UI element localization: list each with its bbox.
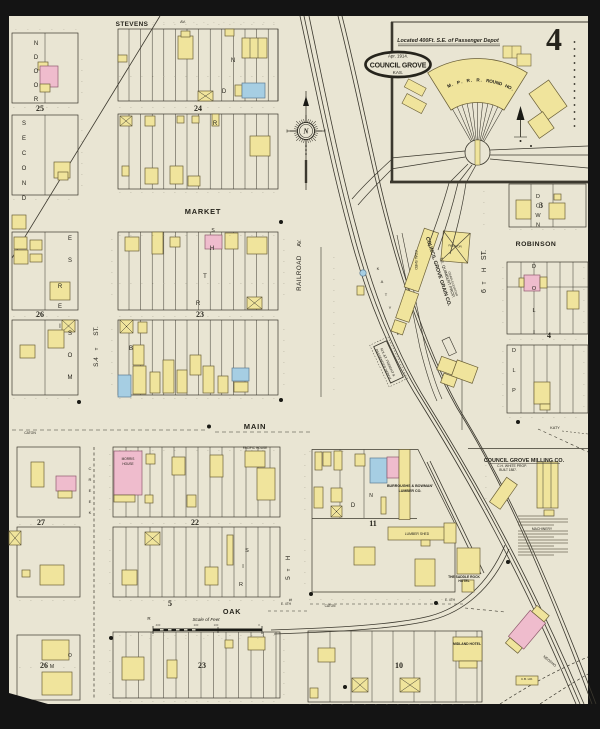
svg-text:H: H: [210, 246, 214, 252]
svg-text:5: 5: [168, 599, 172, 608]
svg-text:4: 4: [547, 331, 551, 340]
svg-text:N: N: [231, 58, 235, 64]
svg-text:R: R: [58, 284, 63, 290]
svg-text:D: D: [351, 503, 356, 509]
svg-text:ROBINSON: ROBINSON: [516, 241, 557, 248]
svg-text:R: R: [239, 582, 243, 588]
svg-text:O: O: [34, 69, 39, 75]
svg-text:R: R: [213, 121, 218, 127]
svg-text:26: 26: [36, 310, 44, 319]
svg-text:O: O: [68, 653, 72, 659]
svg-text:E: E: [58, 304, 62, 310]
svg-text:25: 25: [36, 104, 44, 113]
svg-text:S: S: [68, 331, 72, 337]
svg-text:MIDLAND HOTEL: MIDLAND HOTEL: [453, 642, 481, 646]
svg-text:E: E: [89, 499, 92, 504]
svg-text:C.B. HO.: C.B. HO.: [521, 677, 533, 681]
svg-text:6: 6: [481, 289, 488, 293]
svg-text:COUNCIL GROVE: COUNCIL GROVE: [370, 63, 427, 70]
svg-text:W: W: [535, 213, 541, 219]
svg-text:Located 400Ft. S.E. of Passeng: Located 400Ft. S.E. of Passenger Depot: [397, 38, 499, 44]
svg-text:BUILT 1887.: BUILT 1887.: [499, 468, 517, 472]
svg-text:C: C: [22, 151, 27, 157]
svg-text:ST.: ST.: [481, 250, 488, 260]
svg-text:N: N: [302, 128, 309, 136]
svg-text:HOUSE: HOUSE: [122, 462, 133, 466]
svg-text:11: 11: [369, 519, 377, 528]
svg-text:O: O: [34, 83, 39, 89]
svg-text:Apr. 1914.: Apr. 1914.: [388, 54, 408, 59]
svg-text:O: O: [536, 204, 541, 210]
svg-text:P: P: [512, 388, 516, 394]
svg-text:MACHINERY: MACHINERY: [532, 527, 553, 531]
svg-text:.: .: [481, 78, 483, 83]
svg-text:T: T: [482, 281, 488, 284]
svg-text:D: D: [222, 89, 227, 95]
svg-text:O: O: [68, 353, 73, 359]
svg-text:R: R: [89, 477, 92, 482]
svg-text:KAS.: KAS.: [393, 70, 403, 75]
svg-text:E. 4TH: E. 4TH: [445, 598, 456, 602]
svg-text:OAK: OAK: [223, 607, 241, 616]
svg-text:S: S: [245, 548, 249, 554]
svg-text:22: 22: [191, 518, 199, 527]
svg-text:5: 5: [285, 576, 292, 580]
svg-text:S.4: S.4: [93, 357, 100, 367]
svg-text:MARKET: MARKET: [185, 207, 221, 216]
svg-text:D: D: [532, 264, 536, 270]
svg-text:T: T: [94, 347, 99, 350]
svg-text:A: A: [381, 279, 384, 284]
svg-text:K: K: [377, 266, 380, 271]
svg-text:LUMBER CO.: LUMBER CO.: [399, 489, 422, 493]
svg-text:H: H: [482, 268, 488, 272]
svg-text:S: S: [68, 258, 72, 264]
svg-text:D: D: [536, 194, 540, 200]
svg-text:Y: Y: [389, 305, 392, 310]
svg-text:T: T: [203, 274, 207, 280]
svg-text:B: B: [129, 346, 133, 352]
svg-text:K: K: [89, 510, 92, 515]
svg-text:D: D: [34, 55, 39, 61]
svg-text:10: 10: [395, 661, 403, 670]
svg-text:400: 400: [156, 623, 161, 627]
svg-text:23: 23: [198, 661, 206, 670]
svg-text:MORRIS: MORRIS: [122, 457, 135, 461]
svg-text:R: R: [34, 97, 39, 103]
svg-text:S: S: [22, 121, 26, 127]
svg-text:H: H: [286, 556, 292, 560]
svg-text:T: T: [286, 568, 291, 571]
svg-text:KATY: KATY: [550, 426, 560, 430]
svg-text:4: 4: [546, 21, 562, 57]
svg-text:CATON: CATON: [325, 604, 337, 608]
svg-text:M: M: [68, 375, 73, 381]
svg-text:ST.: ST.: [93, 326, 100, 336]
svg-text:LUMBER SHED: LUMBER SHED: [405, 532, 430, 536]
svg-text:O: O: [532, 286, 537, 292]
svg-text:CATON: CATON: [24, 431, 36, 435]
svg-text:COAL SHED: COAL SHED: [414, 250, 418, 270]
svg-text:D: D: [512, 348, 516, 354]
svg-text:N: N: [22, 181, 26, 187]
svg-text:MAIN: MAIN: [244, 422, 267, 431]
svg-text:O: O: [22, 166, 27, 172]
svg-text:N: N: [369, 493, 373, 499]
svg-text:R: R: [196, 301, 201, 307]
svg-text:100: 100: [214, 623, 219, 627]
svg-text:RAILROAD: RAILROAD: [296, 255, 303, 291]
svg-text:E: E: [89, 488, 92, 493]
svg-text:E: E: [68, 236, 72, 242]
svg-text:N: N: [34, 41, 38, 47]
svg-text:E. 4TH: E. 4TH: [281, 602, 292, 606]
svg-text:N: N: [536, 223, 540, 229]
svg-text:HOTEL: HOTEL: [458, 579, 469, 583]
svg-text:AV.: AV.: [297, 239, 303, 246]
svg-text:C: C: [89, 466, 92, 471]
svg-text:L: L: [512, 368, 515, 374]
svg-text:200: 200: [194, 623, 199, 627]
svg-text:L: L: [532, 308, 535, 314]
svg-text:BURROUGHS & BOWMAN’: BURROUGHS & BOWMAN’: [387, 484, 433, 488]
svg-text:E: E: [22, 136, 26, 142]
svg-text:24: 24: [194, 104, 202, 113]
svg-text:PACIFIC HOUSE: PACIFIC HOUSE: [243, 446, 268, 450]
svg-text:Scale of Feet: Scale of Feet: [192, 617, 220, 622]
